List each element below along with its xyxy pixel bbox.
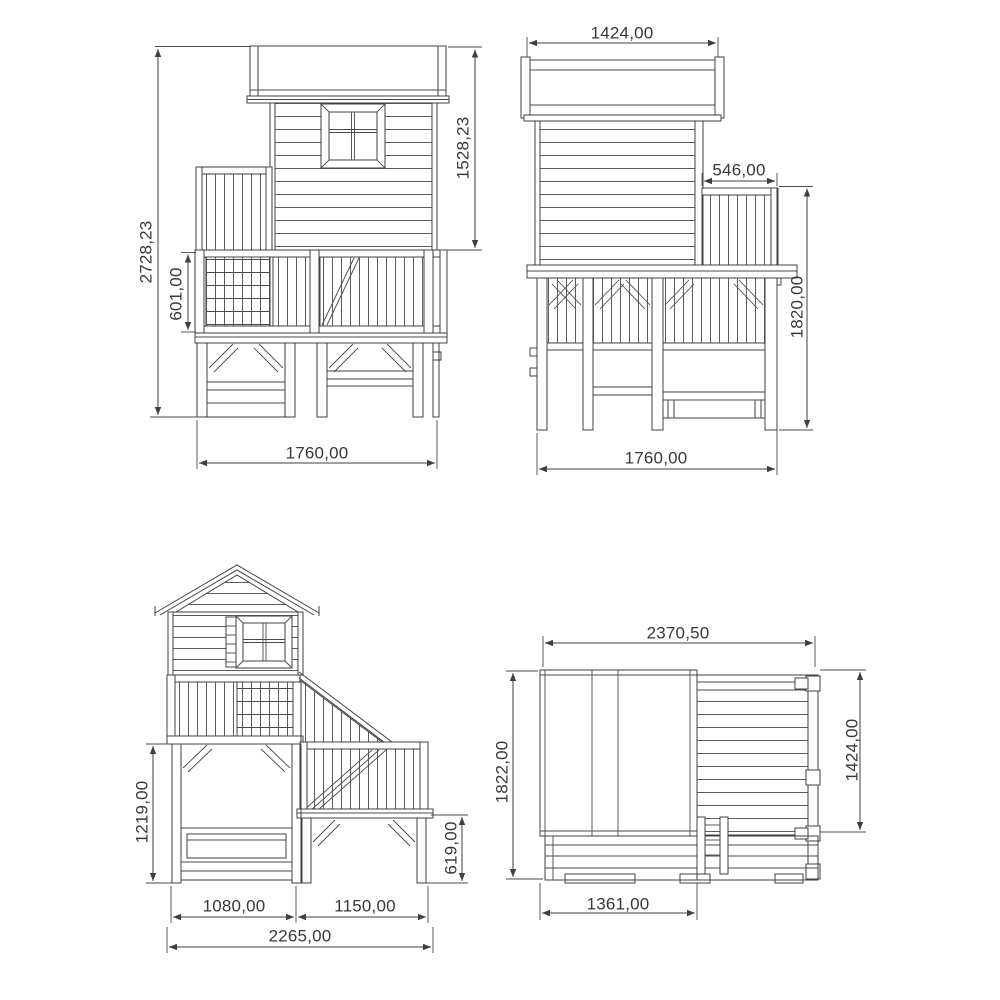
- side-elevation-view: [521, 37, 813, 475]
- dim-back-stair-width-label: 1150,00: [334, 898, 396, 915]
- front-elevation-view: [150, 46, 482, 469]
- dim-plan-house-width-label: 1361,00: [587, 896, 650, 913]
- back-stair-elevation-view: [146, 565, 468, 953]
- dim-side-height-label: 1820,00: [789, 276, 806, 339]
- dim-front-house-height-label: 1528,23: [455, 117, 472, 180]
- dim-front-total-height-label: 2728,23: [138, 221, 155, 284]
- dim-plan-total-width-label: 2370,50: [647, 625, 710, 642]
- dim-plan-total-depth-label: 1822,00: [494, 741, 511, 804]
- dim-plan-deck-depth-label: 1424,00: [844, 719, 861, 782]
- dim-side-roof-width-label: 1424,00: [591, 25, 654, 42]
- dim-back-stair-platform-height-label: 619,00: [443, 821, 460, 874]
- playhouse-technical-drawing: 2728,23 1528,23 601,00 1760,00 1424,00 5…: [0, 0, 1000, 1000]
- plan-view: [506, 636, 866, 920]
- dim-back-platform-height-label: 1219,00: [134, 781, 151, 844]
- dim-side-balcony-width-label: 546,00: [712, 162, 765, 179]
- dim-front-railing-height-label: 601,00: [168, 267, 185, 320]
- dim-back-total-width-label: 2265,00: [269, 928, 332, 945]
- dim-side-base-width-label: 1760,00: [625, 450, 688, 467]
- drawing-linework: [0, 0, 1000, 1000]
- dim-back-house-width-label: 1080,00: [203, 898, 266, 915]
- dim-front-base-width-label: 1760,00: [286, 445, 349, 462]
